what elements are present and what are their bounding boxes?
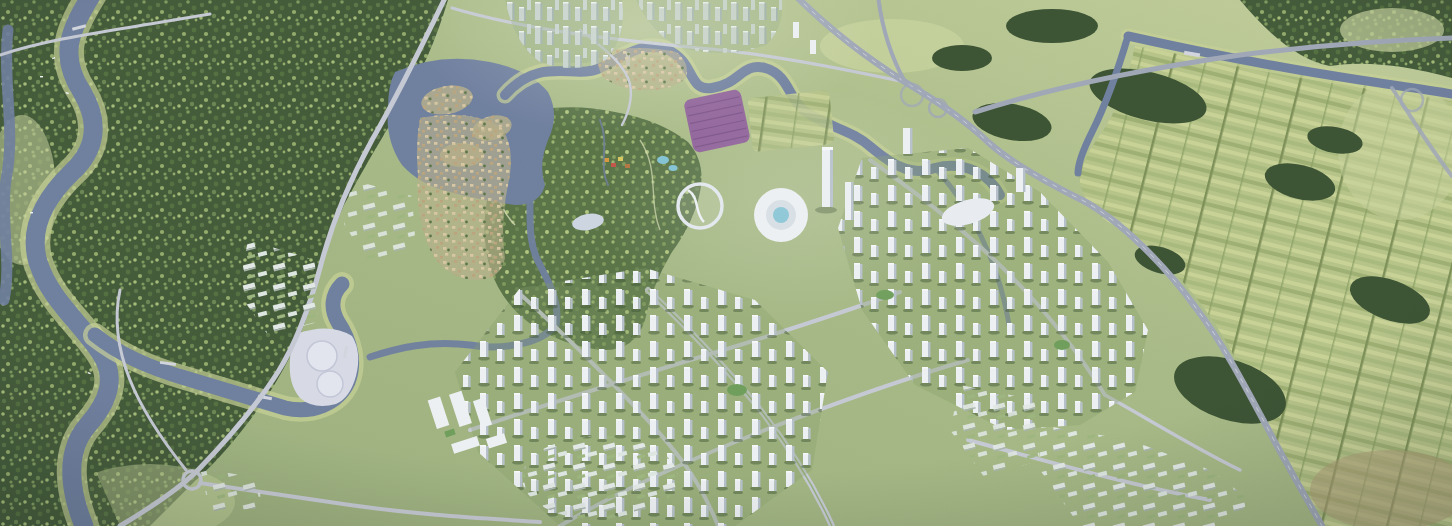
city-masterplan-render xyxy=(0,0,1452,526)
vignette xyxy=(0,0,1452,526)
atmosphere xyxy=(0,0,1452,526)
masterplan-canvas xyxy=(0,0,1452,526)
